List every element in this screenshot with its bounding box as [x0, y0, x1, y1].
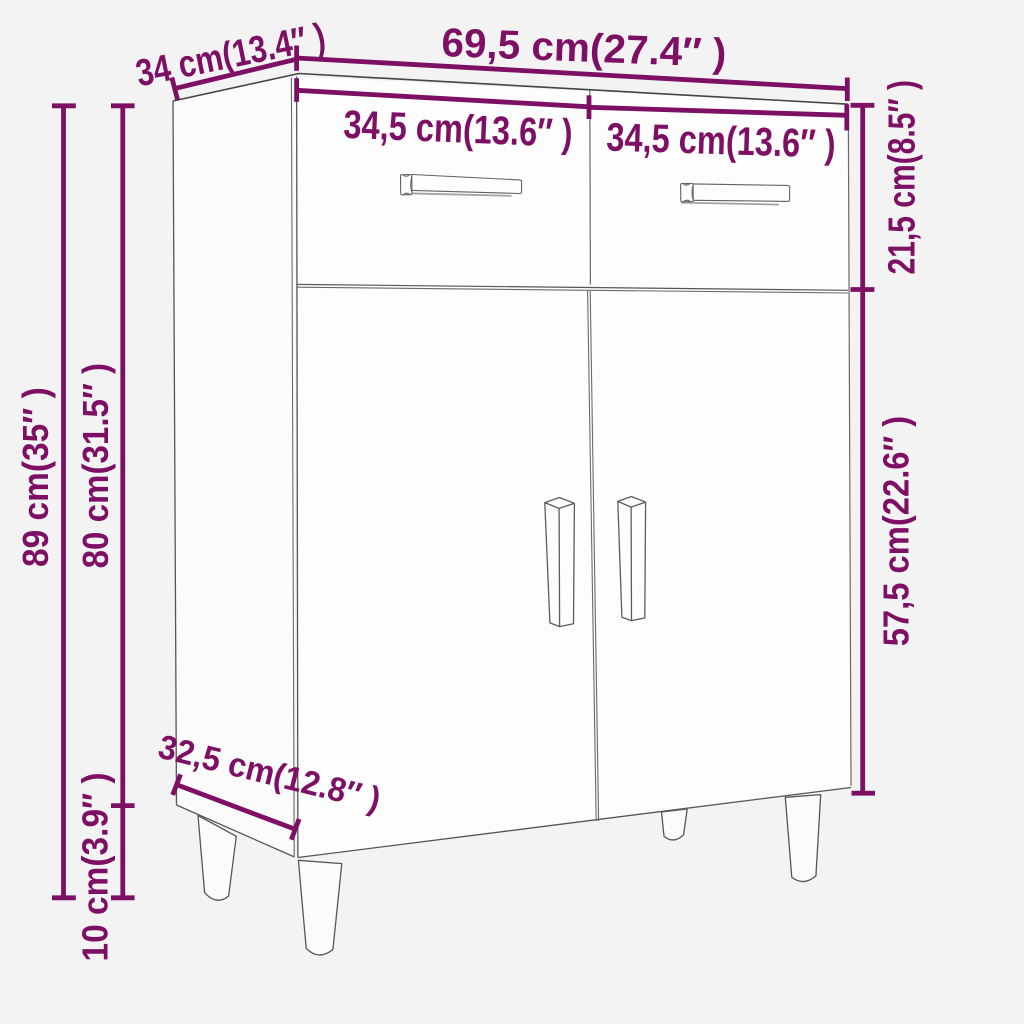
svg-text:10 cm(3.9″ ): 10 cm(3.9″ ) [76, 772, 115, 961]
svg-text:21,5 cm(8.5″ ): 21,5 cm(8.5″ ) [881, 80, 923, 275]
svg-text:57,5 cm(22.6″ ): 57,5 cm(22.6″ ) [877, 416, 917, 647]
svg-text:34,5 cm(13.6″ ): 34,5 cm(13.6″ ) [606, 114, 837, 166]
svg-text:89 cm(35″ ): 89 cm(35″ ) [17, 387, 56, 567]
svg-text:80 cm(31.5″ ): 80 cm(31.5″ ) [77, 363, 117, 568]
svg-text:34,5 cm(13.6″ ): 34,5 cm(13.6″ ) [343, 102, 574, 156]
